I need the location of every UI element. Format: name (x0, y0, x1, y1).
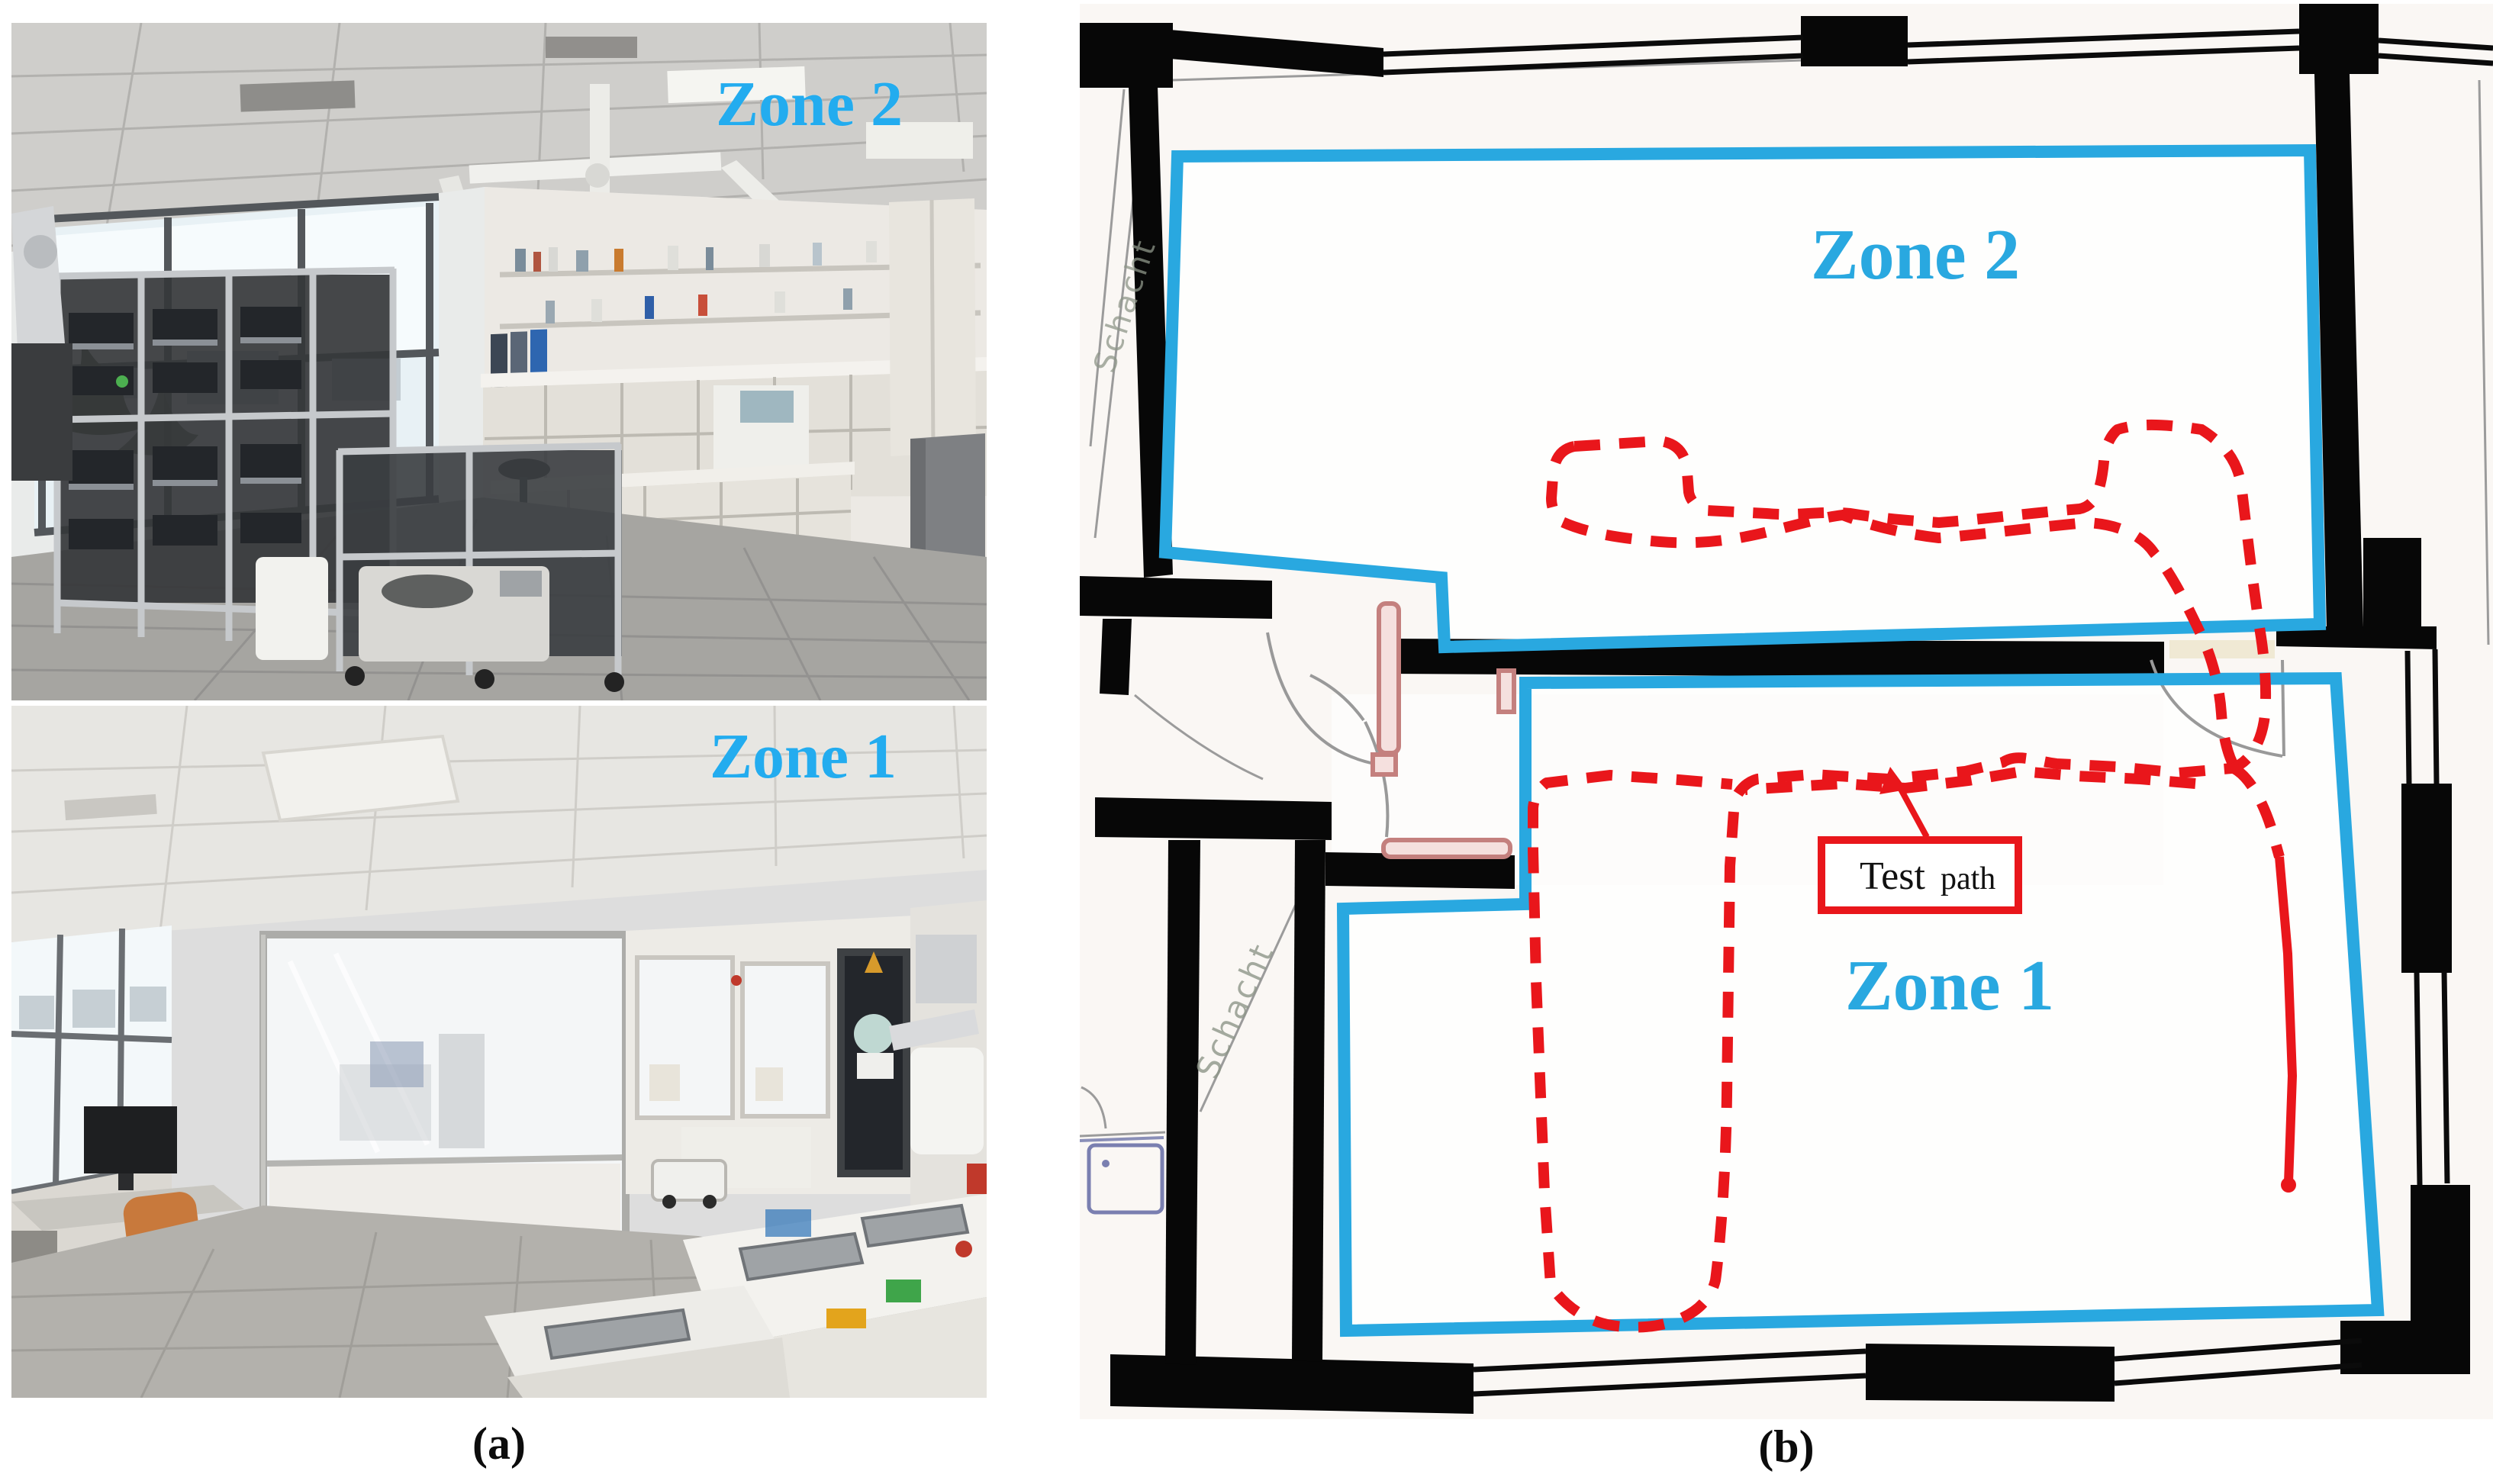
floor-plan: Test path Zone 2 Zone 1 Schacht Schacht (1080, 4, 2493, 1419)
test-path-label-word1: Test (1860, 855, 1925, 898)
canister (256, 557, 328, 660)
red-button (955, 1241, 972, 1257)
wall-zone1-right-upper (2401, 784, 2452, 973)
zone2-photo-label: Zone 2 (716, 67, 903, 141)
ceiling-vent (240, 80, 355, 111)
dark-doorway (837, 948, 910, 1177)
zone1-lab-photo-scene (11, 706, 987, 1398)
wall-stub (1100, 619, 1132, 695)
wall-topright-block (2299, 4, 2379, 74)
cabinet-door-line (932, 200, 933, 454)
zone1-lab-photo: Zone 1 (11, 706, 987, 1398)
plan-zone2-label: Zone 2 (1811, 215, 2020, 295)
caption-b: (b) (1080, 1421, 2493, 1473)
blue-rack (765, 1209, 811, 1237)
wall-right-step-block (2363, 538, 2421, 626)
wall-bottom-bar1 (1110, 1354, 1474, 1414)
door-hinge (1373, 755, 1396, 774)
wall-bottom-bar2 (1866, 1344, 2115, 1402)
wall-step-left (1080, 576, 1272, 619)
wall-schacht-left (1165, 840, 1200, 1365)
wall-topleft-block (1080, 23, 1173, 88)
green-item (886, 1280, 921, 1302)
ceiling-vent (546, 37, 637, 58)
wall-top-middle-block (1801, 16, 1908, 66)
zone2-lab-photo: Zone 2 (11, 23, 987, 700)
door-leaf-horizontal (1383, 840, 1510, 857)
door-leaf-vertical (1379, 604, 1399, 753)
plan-zone1-label: Zone 1 (1845, 946, 2054, 1025)
mobile-robot (652, 1160, 726, 1209)
green-led (116, 375, 128, 388)
test-path-endpoint (2281, 1177, 2296, 1193)
zone1-photo-label: Zone 1 (710, 719, 897, 794)
sponge (826, 1309, 866, 1328)
test-path-label-word2: path (1941, 861, 1995, 897)
caption-a: (a) (11, 1418, 987, 1470)
door-stub (1499, 671, 1514, 712)
wall-schacht-right (1292, 840, 1325, 1362)
wall-t-bar (1095, 797, 1332, 840)
dishwasher-label (740, 391, 794, 423)
